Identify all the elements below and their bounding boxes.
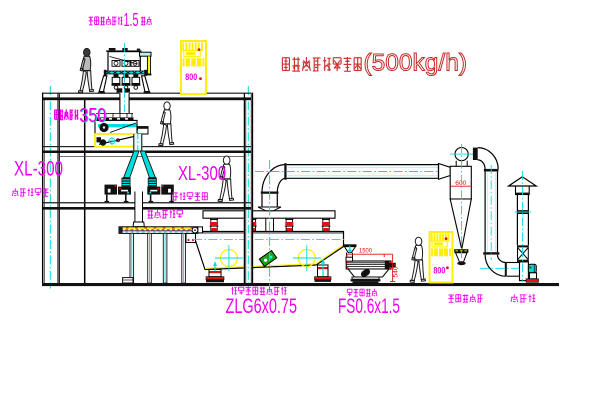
svg-text:800: 800 <box>185 72 197 82</box>
svg-text:350: 350 <box>79 105 106 127</box>
svg-text:800: 800 <box>433 266 445 276</box>
svg-text:ZLG6x0.75: ZLG6x0.75 <box>226 295 298 318</box>
svg-text:1.5: 1.5 <box>124 10 139 30</box>
svg-text:(500kg/h): (500kg/h) <box>364 50 468 77</box>
svg-text:1500: 1500 <box>359 249 373 255</box>
svg-text:540: 540 <box>393 266 400 277</box>
svg-text:FS0.6x1.5: FS0.6x1.5 <box>338 295 400 318</box>
svg-text:XL-300: XL-300 <box>14 157 63 181</box>
svg-text:XL-300: XL-300 <box>178 163 226 185</box>
